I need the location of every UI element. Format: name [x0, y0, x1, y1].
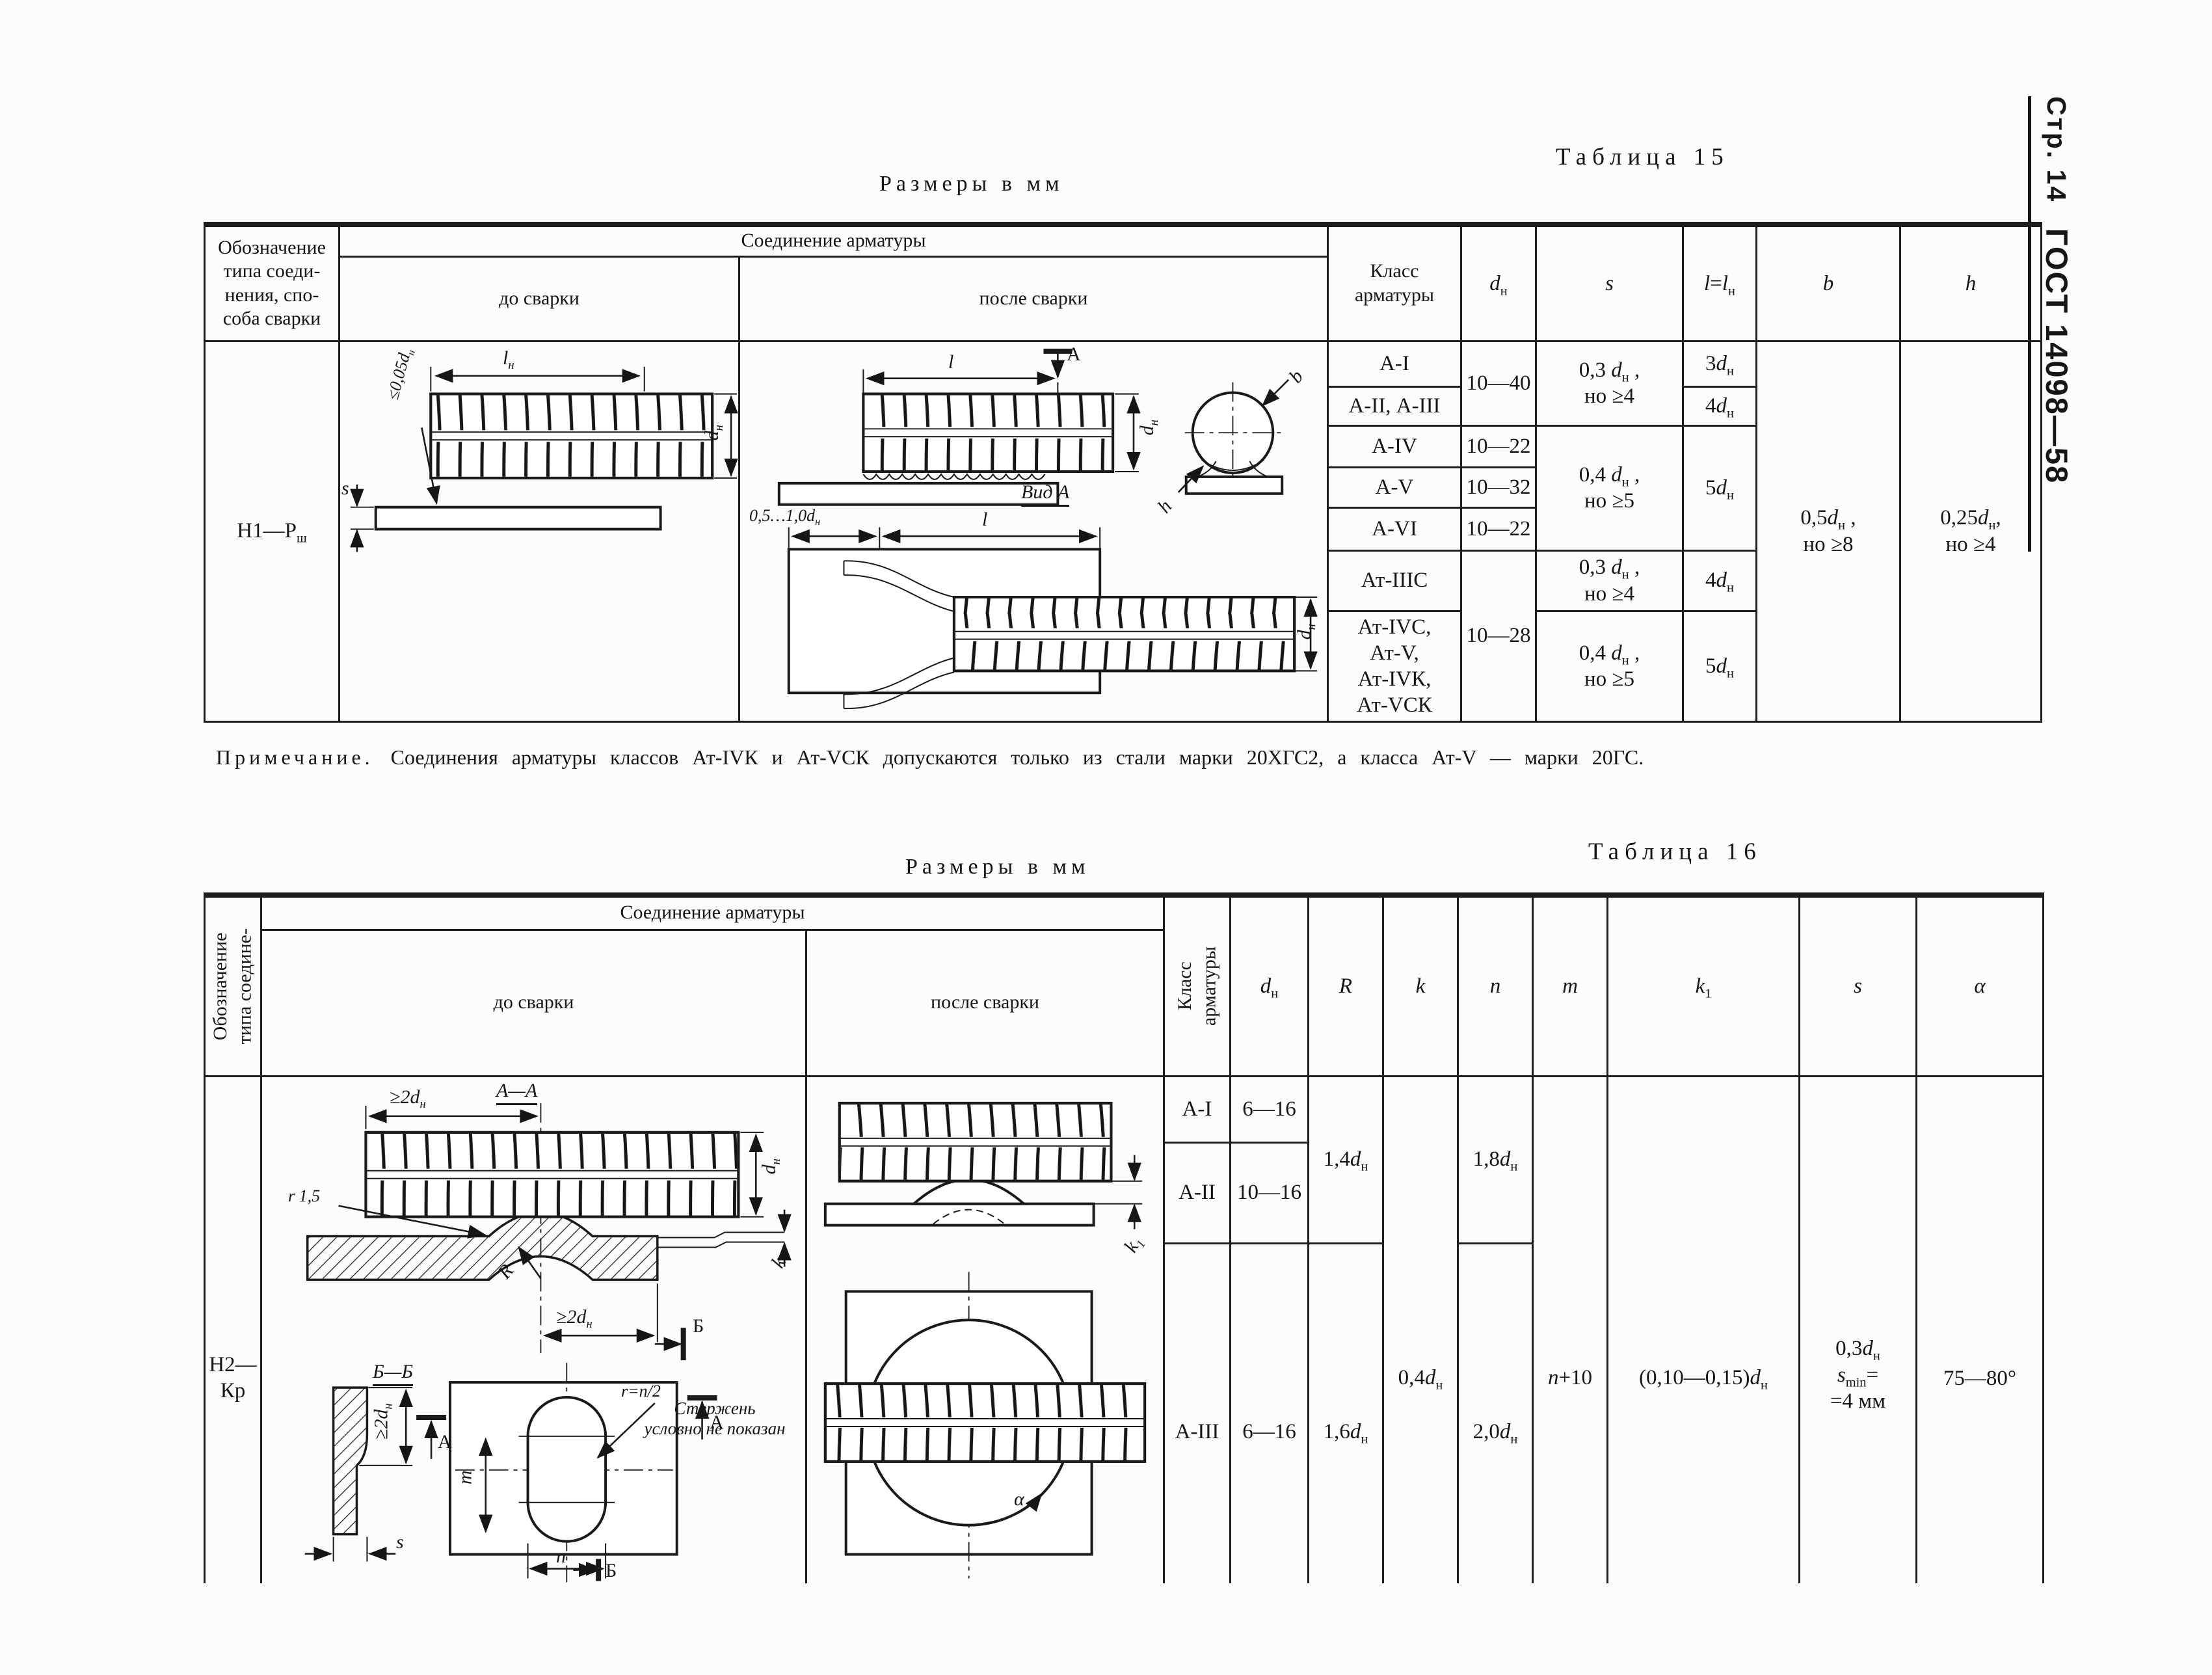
dim-m-label: m [455, 1470, 477, 1484]
t16-figure-before-cell: А—А ≥2dн r 1,5 dн k R ≥2dн Б Б—Б ≥2dн s … [261, 1076, 806, 1583]
t16-h-m: m [1533, 895, 1608, 1076]
t15-figure-after-cell: l А dн Вид А b h 0,5…1,0dн l dн [740, 341, 1328, 721]
t15-h-s: s [1536, 224, 1683, 341]
note-label: Примечание. [216, 745, 374, 769]
t15-h-dn: dн [1461, 224, 1536, 341]
t16-dn-1: 6—16 [1231, 1076, 1309, 1142]
t15-h-after: после сварки [740, 256, 1328, 341]
note-text: Соединения арматуры классов Ат-IVК и Ат-… [391, 745, 1644, 769]
dim-s-label: s [341, 477, 349, 500]
dim-2dn-top-label: ≥2dн [390, 1086, 426, 1109]
t15-s-345: 0,4 dн , но ≥5 [1536, 425, 1683, 550]
t16-h-class-text: Класс арматуры [1173, 946, 1221, 1026]
t15-h-h: h [1900, 224, 2042, 341]
t15-class-3: А-IV [1328, 425, 1461, 467]
page-number: Стр. 14 [2042, 96, 2072, 203]
t15-figure-before: lн ≤0,05dн s dн [340, 342, 738, 721]
t16-after-drawing [807, 1077, 1163, 1584]
t16-k1col: (0,10—0,15)dн [1608, 1076, 1800, 1583]
dim-l-label: l [948, 351, 953, 374]
t15-class-7: Ат-IVС, Ат-V, Ат-IVК, Ат-VСК [1328, 611, 1461, 721]
section-bb-title: Б—Б [373, 1361, 413, 1387]
t15-figure-before-cell: lн ≤0,05dн s dн [340, 341, 740, 721]
t16-h-R: R [1309, 895, 1383, 1076]
dim-l2-label: l [982, 509, 987, 531]
t15-h-l: l=lн [1683, 224, 1757, 341]
t16-h-after: после сварки [806, 930, 1164, 1076]
t15-h-class: Класс арматуры [1328, 224, 1461, 341]
dim-dn2-label: dн [1294, 624, 1316, 639]
t15-h-designation: Обозначение типа соеди- нения, спо- соба… [205, 224, 340, 341]
t16-m: n+10 [1533, 1076, 1608, 1583]
t15-s-7: 0,4 dн , но ≥5 [1536, 611, 1683, 721]
gost-number: ГОСТ 14098—58 [2040, 228, 2074, 484]
t16-s: 0,3dн smin= =4 мм [1800, 1076, 1917, 1583]
section-a-mark1-label: А [438, 1431, 452, 1454]
t16-h-k: k [1383, 895, 1458, 1076]
t16-h-class: Класс арматуры [1164, 895, 1231, 1076]
t16-h-s: s [1800, 895, 1917, 1076]
t15-l-7: 5dн [1683, 611, 1757, 721]
dim-gap-label: 0,5…1,0dн [749, 506, 820, 526]
t15-h-joint: Соединение арматуры [340, 224, 1328, 256]
t16-h-designation: Обозначение типа соедине- ния, способа с… [205, 895, 261, 1076]
t15-l-1: 3dн [1683, 341, 1757, 386]
table15-units: Размеры в мм [879, 172, 1063, 196]
dim-2dn-bottom-label: ≥2dн [556, 1306, 593, 1329]
t15-dn-3: 10—22 [1461, 425, 1536, 467]
t16-h-joint: Соединение арматуры [261, 895, 1164, 930]
t15-s-6: 0,3 dн , но ≥4 [1536, 550, 1683, 611]
t16-alpha: 75—80° [1917, 1076, 2044, 1583]
t15-dn-12: 10—40 [1461, 341, 1536, 425]
t16-h-n: n [1458, 895, 1533, 1076]
t16-figure-after: k1 α [807, 1077, 1163, 1584]
dim-dn-label: dн [1136, 420, 1159, 435]
rod-note: Стержень условно не показан [624, 1399, 806, 1439]
dim-dn-label: dн [701, 425, 724, 440]
t15-dn-5: 10—22 [1461, 507, 1536, 550]
t15-l-6: 4dн [1683, 550, 1757, 611]
t16-n-12: 1,8dн [1458, 1076, 1533, 1243]
t15-l-345: 5dн [1683, 425, 1757, 550]
dim-ln-label: lн [503, 347, 514, 370]
dim-2dn-vert-label: ≥2dн [371, 1403, 393, 1440]
t15-dn-67: 10—28 [1461, 550, 1536, 721]
table16: Обозначение типа соедине- ния, способа с… [204, 892, 2044, 1583]
t16-dn-2: 10—16 [1231, 1142, 1309, 1243]
t16-h-alpha: α [1917, 895, 2044, 1076]
t16-class-2: А-II [1164, 1142, 1231, 1243]
section-a-label: А [1067, 343, 1081, 366]
dim-s-label: s [396, 1531, 404, 1554]
section-b-mark2-label: Б [606, 1560, 617, 1583]
t16-R-3: 1,6dн [1309, 1243, 1383, 1583]
t15-designation: Н1—Рш [205, 341, 340, 721]
t15-figure-after: l А dн Вид А b h 0,5…1,0dн l dн [740, 342, 1327, 721]
view-a-label: Вид А [1021, 481, 1069, 507]
t16-before-drawing [262, 1077, 805, 1584]
t15-h-b: b [1757, 224, 1900, 341]
table16-units: Размеры в мм [905, 855, 1089, 879]
table16-caption: Таблица 16 [1588, 838, 1762, 866]
t15-h-val: 0,25dн, но ≥4 [1900, 341, 2042, 721]
t15-class-2: А-II, А-III [1328, 386, 1461, 425]
dim-r15-label: r 1,5 [288, 1186, 320, 1206]
section-aa-title: А—А [496, 1080, 537, 1106]
t15-class-6: Ат-IIIС [1328, 550, 1461, 611]
t15-b: 0,5dн , но ≥8 [1757, 341, 1900, 721]
t15-h-before: до сварки [340, 256, 740, 341]
section-b-mark-label: Б [693, 1315, 704, 1338]
t16-class-1: А-I [1164, 1076, 1231, 1142]
t16-n-3: 2,0dн [1458, 1243, 1533, 1583]
table15: Обозначение типа соеди- нения, спо- соба… [204, 222, 2042, 723]
t15-class-5: А-VI [1328, 507, 1461, 550]
t16-dn-3: 6—16 [1231, 1243, 1309, 1583]
dim-n-label: n [556, 1546, 566, 1568]
t16-figure-after-cell: k1 α [806, 1076, 1164, 1583]
t15-s-12: 0,3 dн , но ≥4 [1536, 341, 1683, 425]
t16-figure-before: А—А ≥2dн r 1,5 dн k R ≥2dн Б Б—Б ≥2dн s … [262, 1077, 805, 1584]
t15-dn-4: 10—32 [1461, 467, 1536, 507]
table15-caption: Таблица 15 [1556, 143, 1729, 171]
table15-note: Примечание.Соединения арматуры классов А… [216, 745, 1644, 770]
t16-h-k1: k1 [1608, 895, 1800, 1076]
t16-class-3: А-III [1164, 1243, 1231, 1583]
document-page: Стр. 14 ГОСТ 14098—58 Таблица 15 Размеры… [0, 0, 2212, 1675]
t15-class-1: А-I [1328, 341, 1461, 386]
t15-l-2: 4dн [1683, 386, 1757, 425]
t16-h-dn: dн [1231, 895, 1309, 1076]
t16-h-designation-text: Обозначение типа соедине- ния, способа с… [208, 928, 261, 1044]
t16-h-before: до сварки [261, 930, 806, 1076]
t16-k: 0,4dн [1383, 1076, 1458, 1583]
t15-after-drawing [740, 342, 1327, 721]
t15-class-4: А-V [1328, 467, 1461, 507]
t16-designation: Н2—Кр [205, 1076, 261, 1583]
dim-dn-label: dн [758, 1159, 781, 1174]
t16-R-12: 1,4dн [1309, 1076, 1383, 1243]
dim-alpha-label: α [1014, 1488, 1024, 1511]
